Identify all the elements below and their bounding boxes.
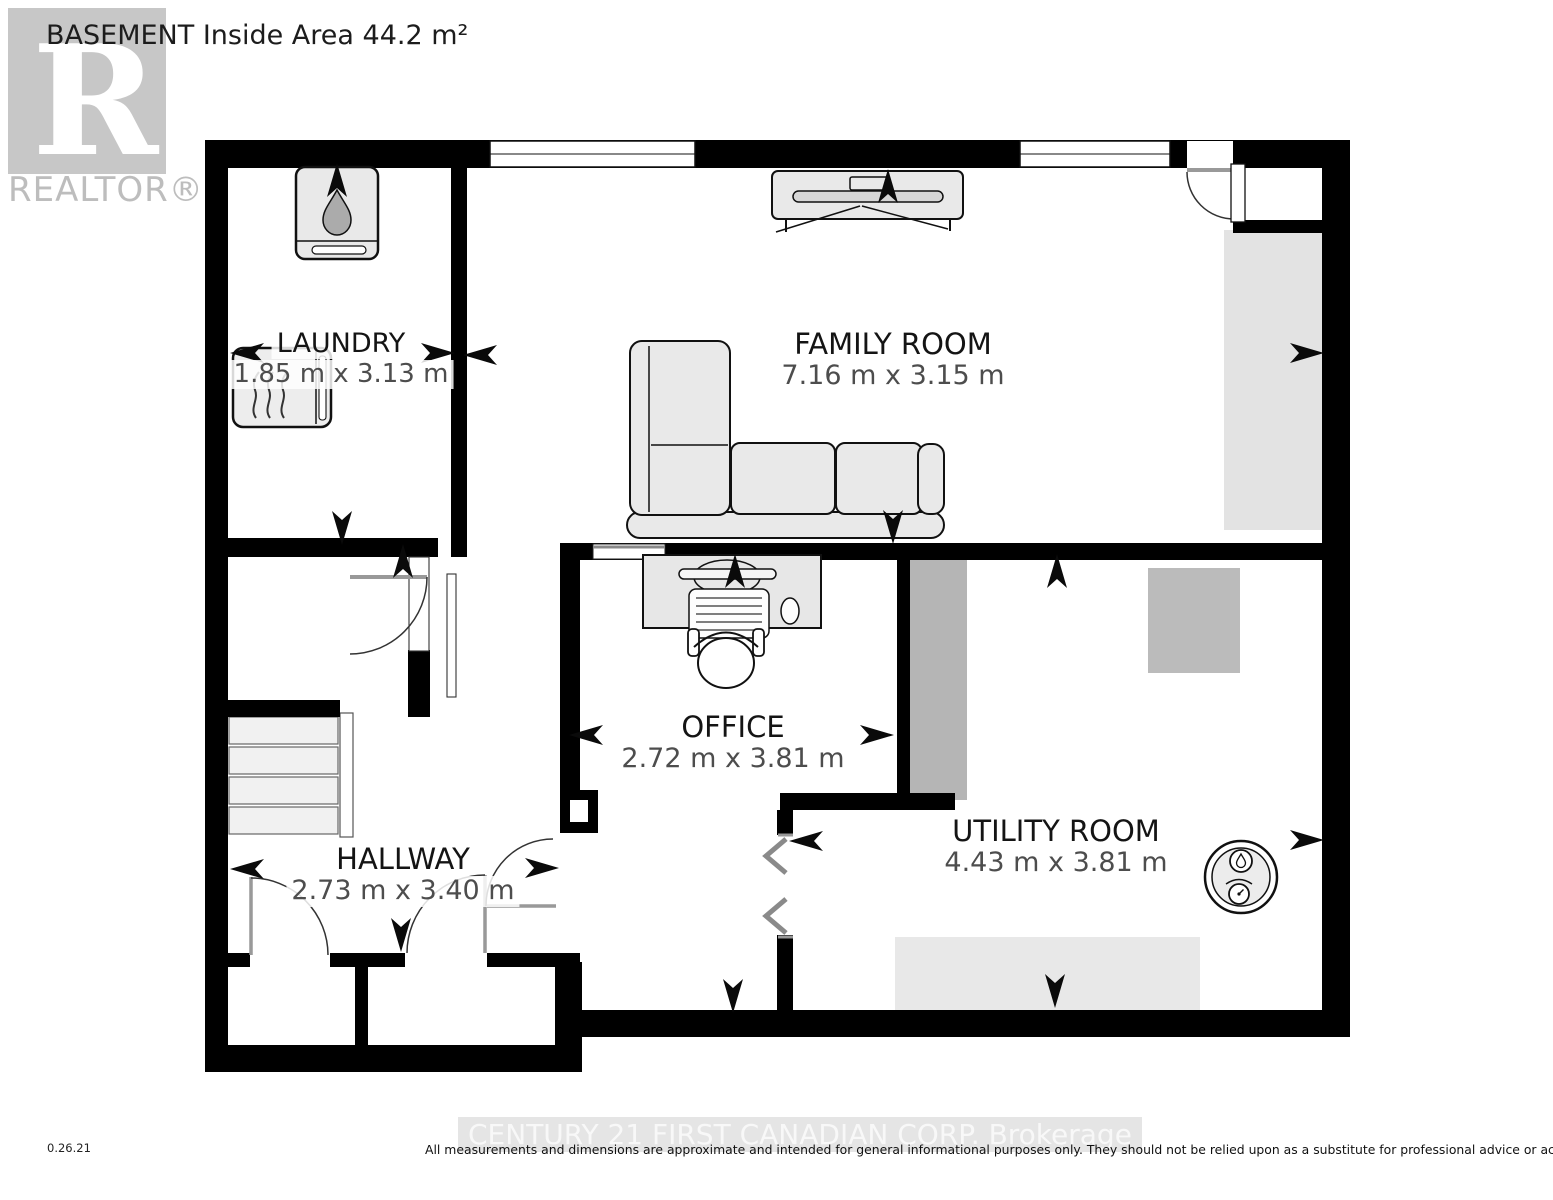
room-dimensions: 1.85 m x 3.13 m (229, 360, 454, 389)
direction-arrow (860, 725, 894, 745)
room-name: OFFICE (676, 711, 789, 743)
room-label-family-room: FAMILY ROOM 7.16 m x 3.15 m (776, 328, 1009, 392)
direction-arrow (463, 345, 497, 365)
version-number: 0.26.21 (47, 1141, 91, 1155)
door-leaf (1231, 164, 1245, 222)
door-gap (1187, 141, 1233, 168)
furnace-pad (1148, 568, 1240, 673)
disclaimer-text: All measurements and dimensions are appr… (425, 1142, 1553, 1157)
direction-arrow (723, 979, 743, 1013)
stair-rail (340, 713, 353, 837)
direction-arrow (230, 859, 264, 879)
room-name: UTILITY ROOM (947, 815, 1165, 847)
floor-plan-drawing (0, 0, 1553, 1200)
monitor-icon (679, 569, 776, 579)
hot-water-tank-icon (1205, 841, 1277, 913)
room-label-hallway: HALLWAY 2.73 m x 3.40 m (286, 843, 519, 907)
window (1020, 141, 1170, 167)
room-name: HALLWAY (331, 843, 475, 875)
room-dimensions: 2.72 m x 3.81 m (616, 744, 849, 774)
direction-arrow (789, 831, 823, 851)
direction-arrow (1290, 830, 1324, 850)
door-leaf (409, 557, 429, 651)
page-title: BASEMENT Inside Area 44.2 m² (46, 20, 468, 51)
room-label-office: OFFICE 2.72 m x 3.81 m (616, 711, 849, 775)
door-leaf (447, 574, 456, 697)
mouse-icon (781, 598, 799, 624)
room-name: FAMILY ROOM (789, 328, 997, 360)
post-core (570, 800, 588, 822)
tv-icon (772, 171, 963, 232)
floor-plan-page: R REALTOR® BASEMENT Inside Area 44.2 m² (0, 0, 1553, 1200)
room-name: LAUNDRY (272, 329, 410, 359)
direction-arrow (391, 918, 411, 952)
room-label-utility-room: UTILITY ROOM 4.43 m x 3.81 m (939, 815, 1172, 879)
bifold-door (766, 835, 793, 937)
window (490, 141, 695, 167)
room-label-laundry: LAUNDRY 1.85 m x 3.13 m (229, 329, 454, 389)
floor-mat (895, 937, 1200, 1013)
direction-arrow (525, 858, 559, 878)
room-dimensions: 7.16 m x 3.15 m (776, 361, 1009, 391)
office-chair (688, 629, 764, 688)
room-dimensions: 4.43 m x 3.81 m (939, 848, 1172, 878)
room-dimensions: 2.73 m x 3.40 m (286, 876, 519, 906)
built-in-shelf (1224, 230, 1322, 530)
duct-chase (910, 555, 967, 800)
stairs (229, 713, 353, 837)
